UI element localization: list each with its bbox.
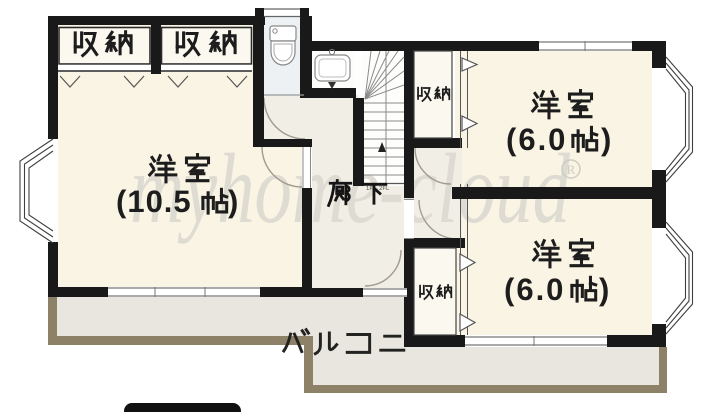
svg-text:(6.0: (6.0: [506, 122, 567, 157]
svg-text:R: R: [567, 162, 576, 177]
svg-text:(10.5: (10.5: [116, 184, 192, 219]
svg-text:): ): [601, 122, 611, 157]
svg-text:): ): [228, 184, 238, 219]
svg-text:(6.0: (6.0: [504, 272, 565, 307]
svg-text:): ): [599, 272, 609, 307]
